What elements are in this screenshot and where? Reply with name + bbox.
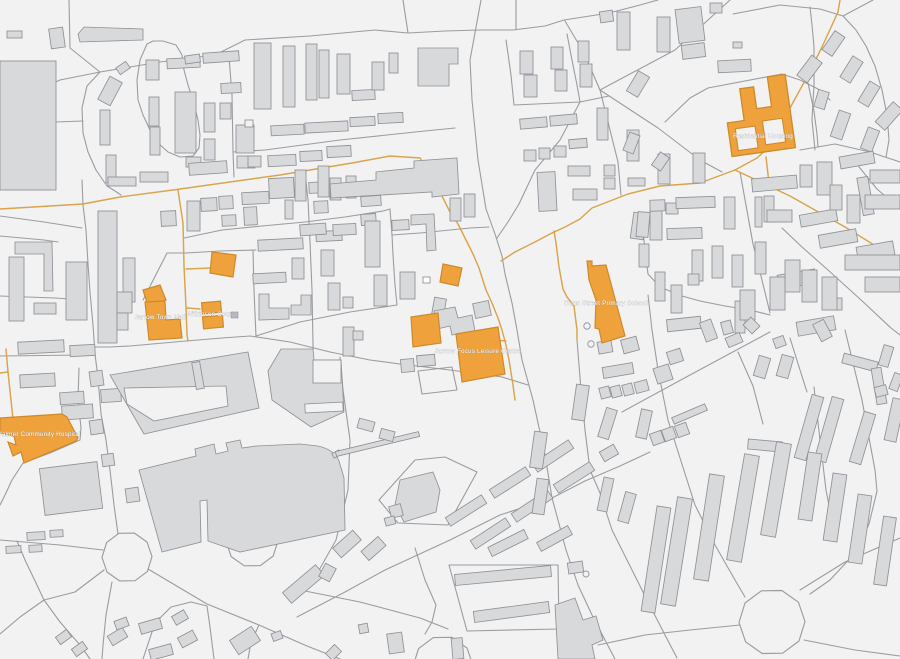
svg-text:Residential Housing: Residential Housing [733,133,793,140]
svg-text:Wilkinson Court: Wilkinson Court [186,311,233,318]
svg-text:Dunn Street Primary School: Dunn Street Primary School [564,300,647,307]
svg-text:Palmer Community Hospital: Palmer Community Hospital [0,431,81,438]
svg-text:Jarrow Town Hall: Jarrow Town Hall [134,314,185,321]
svg-text:Jarrow Focus Leisure Centre: Jarrow Focus Leisure Centre [435,348,522,355]
